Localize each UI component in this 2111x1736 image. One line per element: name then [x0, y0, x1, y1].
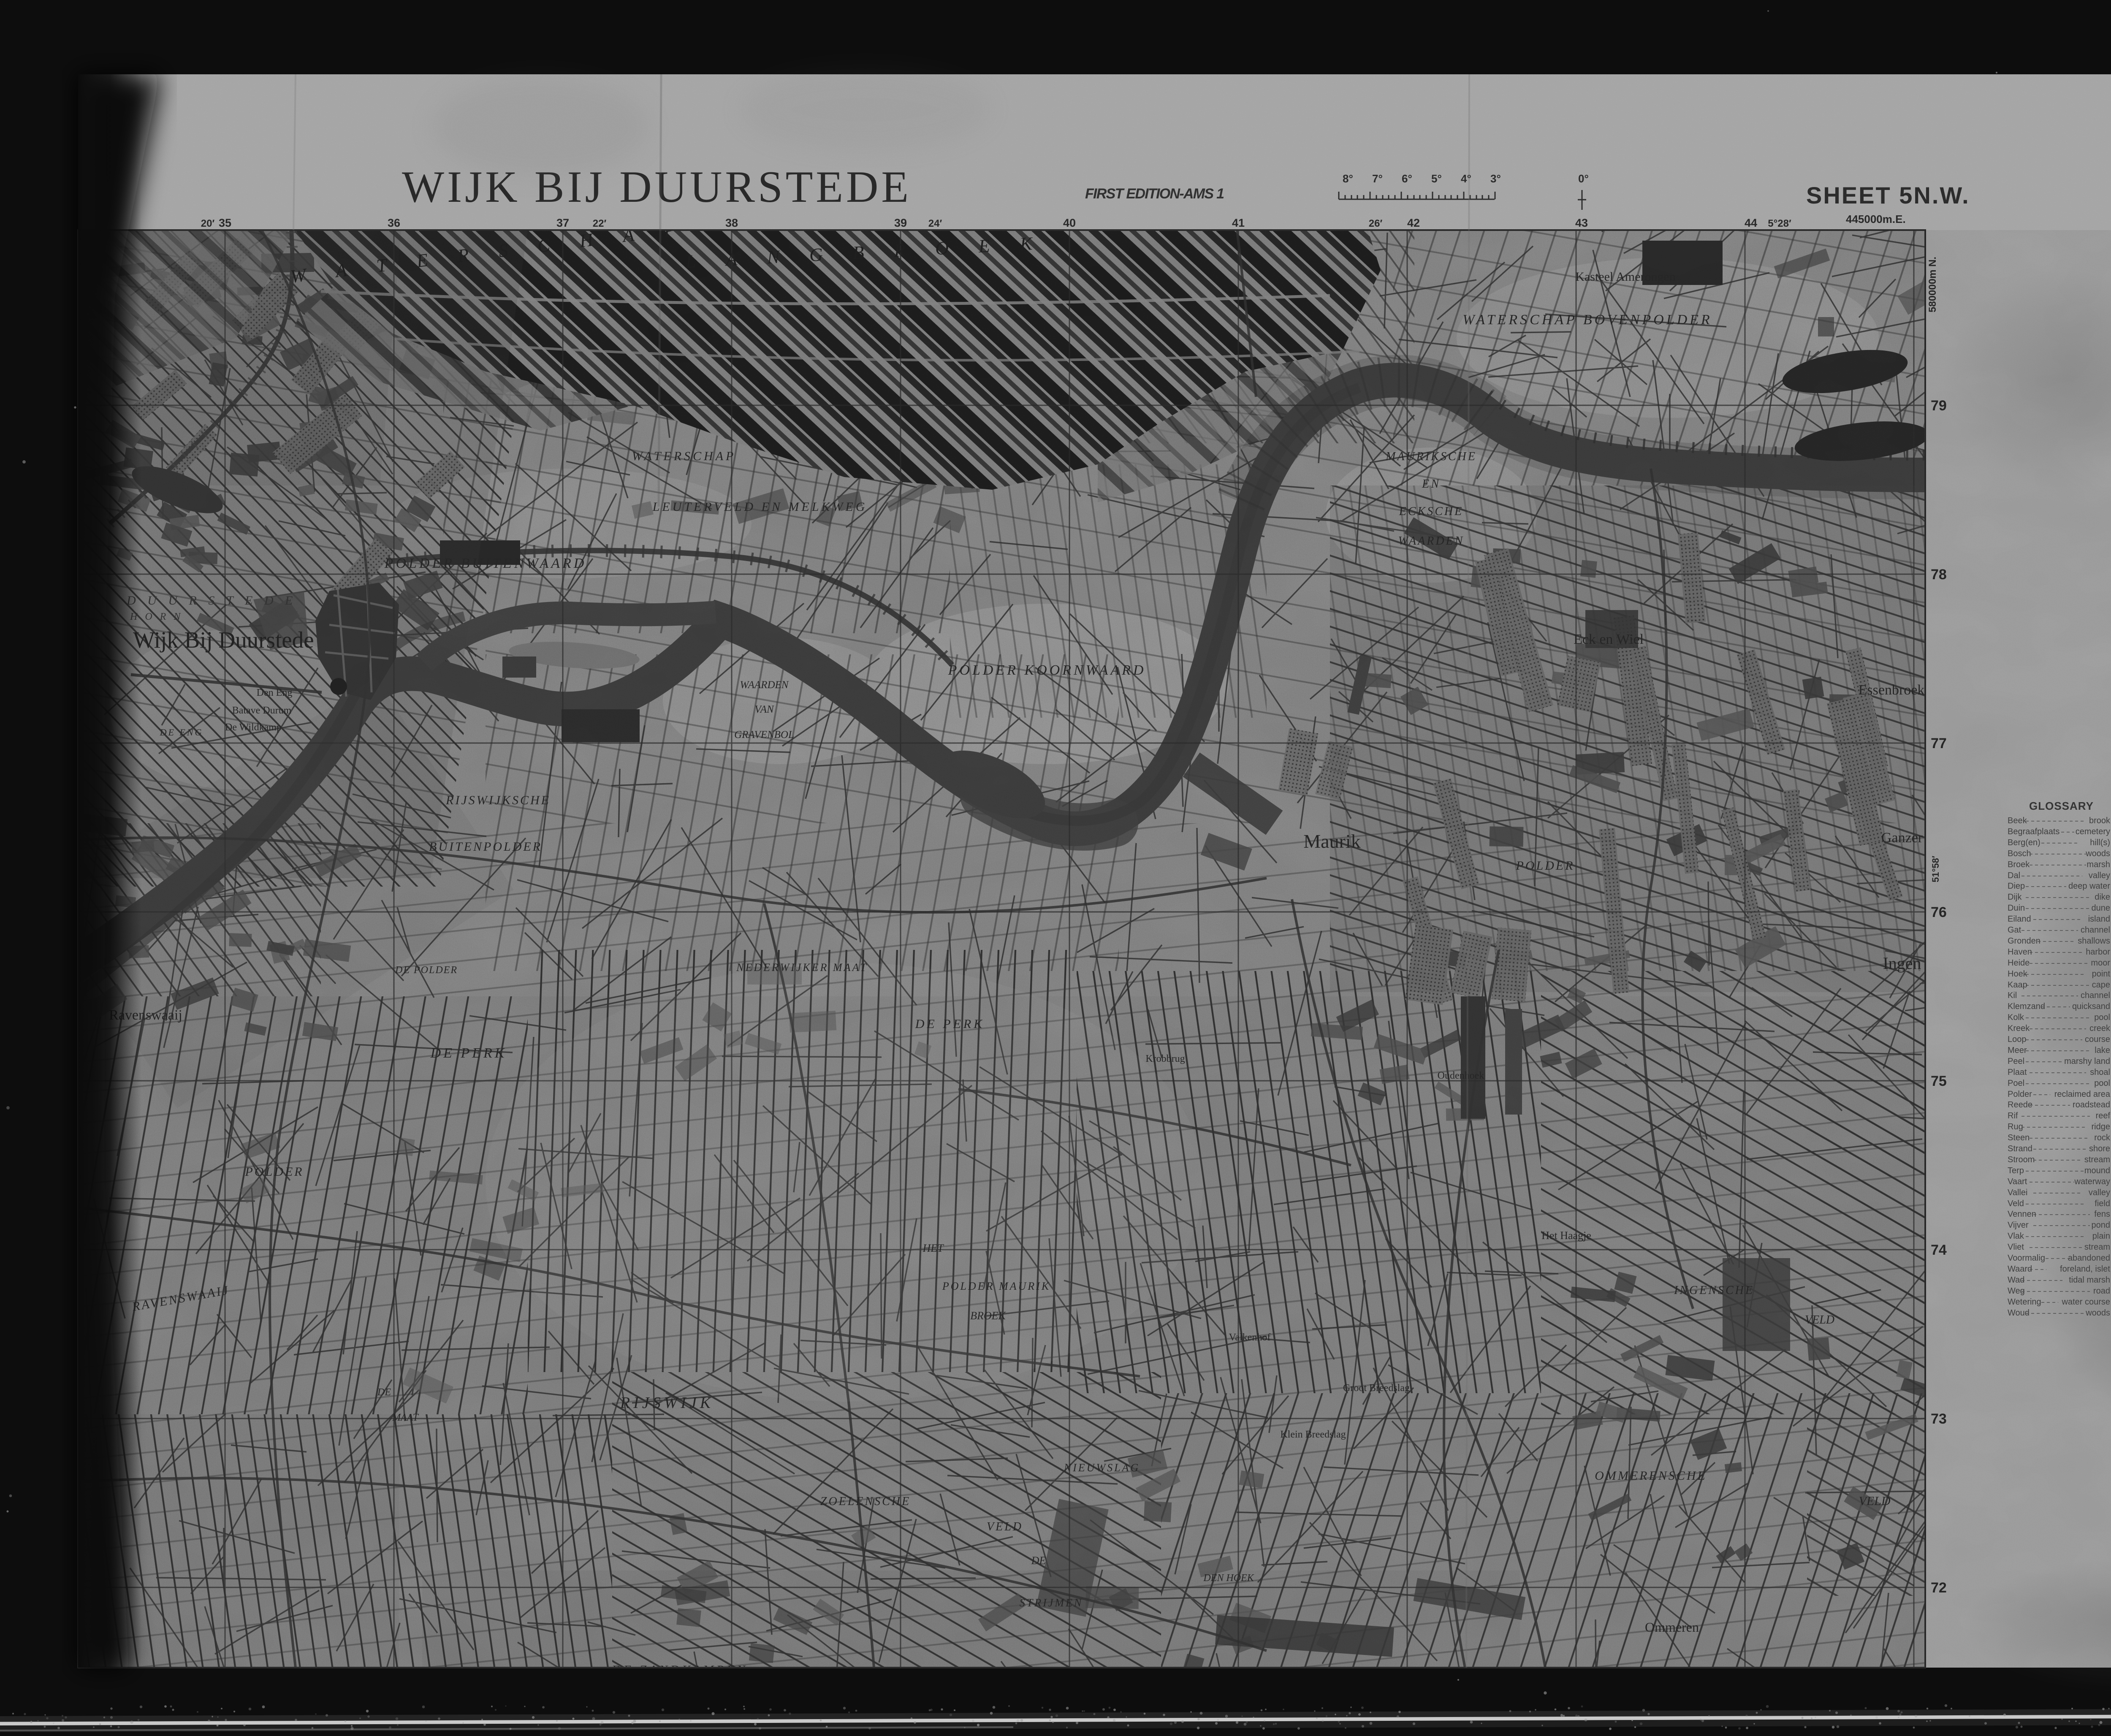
svg-text:WAARDEN: WAARDEN — [740, 679, 789, 691]
svg-text:DEN HOEK: DEN HOEK — [1203, 1573, 1254, 1584]
svg-text:POLDER BUITENWAARD: POLDER BUITENWAARD — [384, 556, 587, 571]
svg-text:VELD: VELD — [987, 1520, 1023, 1533]
svg-text:Valkenhof: Valkenhof — [1229, 1332, 1271, 1343]
svg-text:NIEUWSLAG: NIEUWSLAG — [1064, 1462, 1140, 1474]
svg-text:DE: DE — [1031, 1554, 1046, 1567]
svg-text:VELD: VELD — [1805, 1313, 1834, 1326]
svg-text:Maurik: Maurik — [1303, 830, 1360, 852]
svg-text:POLDER MAURIK: POLDER MAURIK — [942, 1280, 1050, 1292]
svg-text:POLDER: POLDER — [1516, 859, 1575, 873]
svg-text:WAARDEN: WAARDEN — [1398, 534, 1465, 548]
svg-text:DE POLDER: DE POLDER — [395, 965, 458, 976]
svg-text:VAN: VAN — [754, 704, 774, 715]
svg-text:NEDERWIJKER MAAT: NEDERWIJKER MAAT — [736, 961, 868, 974]
svg-text:Essenbroek: Essenbroek — [1859, 682, 1925, 698]
svg-text:WATERSCHAP: WATERSCHAP — [632, 449, 736, 463]
svg-text:Krobbrug: Krobbrug — [1145, 1053, 1185, 1064]
svg-text:Ingen: Ingen — [1883, 954, 1921, 973]
svg-text:GRAVENBOL: GRAVENBOL — [734, 729, 794, 741]
svg-text:ZOELENSCHE: ZOELENSCHE — [820, 1495, 911, 1508]
svg-text:LEUTERVELD EN MELKWEG: LEUTERVELD EN MELKWEG — [652, 500, 868, 514]
svg-text:BUITENPOLDER: BUITENPOLDER — [429, 840, 542, 854]
svg-text:VELD: VELD — [1859, 1494, 1891, 1508]
svg-text:Oudenhoek: Oudenhoek — [1438, 1070, 1484, 1081]
svg-text:BROEK: BROEK — [970, 1310, 1006, 1322]
svg-text:Klein Breedslag: Klein Breedslag — [1280, 1429, 1346, 1440]
svg-text:Eck en Wiel: Eck en Wiel — [1574, 632, 1644, 647]
svg-text:Kasteel Amerongen: Kasteel Amerongen — [1575, 270, 1675, 284]
svg-text:POLDER KOORNWAARD: POLDER KOORNWAARD — [948, 662, 1146, 678]
svg-text:DE PERK: DE PERK — [430, 1045, 507, 1061]
svg-text:HET: HET — [922, 1242, 944, 1254]
svg-text:Wijk Bij Duurstede: Wijk Bij Duurstede — [133, 627, 314, 653]
svg-text:DE PERK: DE PERK — [915, 1017, 985, 1031]
svg-text:RIJSWIJK: RIJSWIJK — [620, 1394, 714, 1412]
svg-text:D U U R S T E D E: D U U R S T E D E — [126, 594, 297, 608]
svg-text:RIJSWIJKSCHE: RIJSWIJKSCHE — [445, 793, 551, 807]
svg-text:Het Haagje: Het Haagje — [1541, 1229, 1591, 1242]
svg-text:STRIJMEN: STRIJMEN — [1020, 1597, 1083, 1609]
svg-text:De Wildkamp: De Wildkamp — [225, 722, 282, 733]
svg-text:Ommeren: Ommeren — [1645, 1619, 1699, 1635]
svg-text:OMMERENSCHE: OMMERENSCHE — [1595, 1469, 1707, 1483]
svg-text:DE ENG: DE ENG — [160, 727, 204, 738]
svg-text:EN: EN — [1422, 477, 1441, 491]
svg-text:Den Eng: Den Eng — [257, 687, 293, 698]
svg-text:MAURIKSCHE: MAURIKSCHE — [1385, 450, 1477, 463]
svg-text:DE: DE — [377, 1387, 391, 1398]
svg-text:MAAT: MAAT — [392, 1412, 419, 1423]
svg-text:WATERSCHAP BOVENPOLDER: WATERSCHAP BOVENPOLDER — [1463, 312, 1712, 328]
svg-text:Ganzer: Ganzer — [1881, 830, 1923, 846]
svg-text:POLDER: POLDER — [245, 1165, 304, 1179]
svg-text:INGENSCHE: INGENSCHE — [1674, 1284, 1754, 1297]
svg-text:ECKSCHE: ECKSCHE — [1399, 505, 1463, 518]
svg-text:Batave Durum: Batave Durum — [232, 705, 292, 716]
svg-text:Groot Breedslag: Groot Breedslag — [1343, 1383, 1410, 1394]
